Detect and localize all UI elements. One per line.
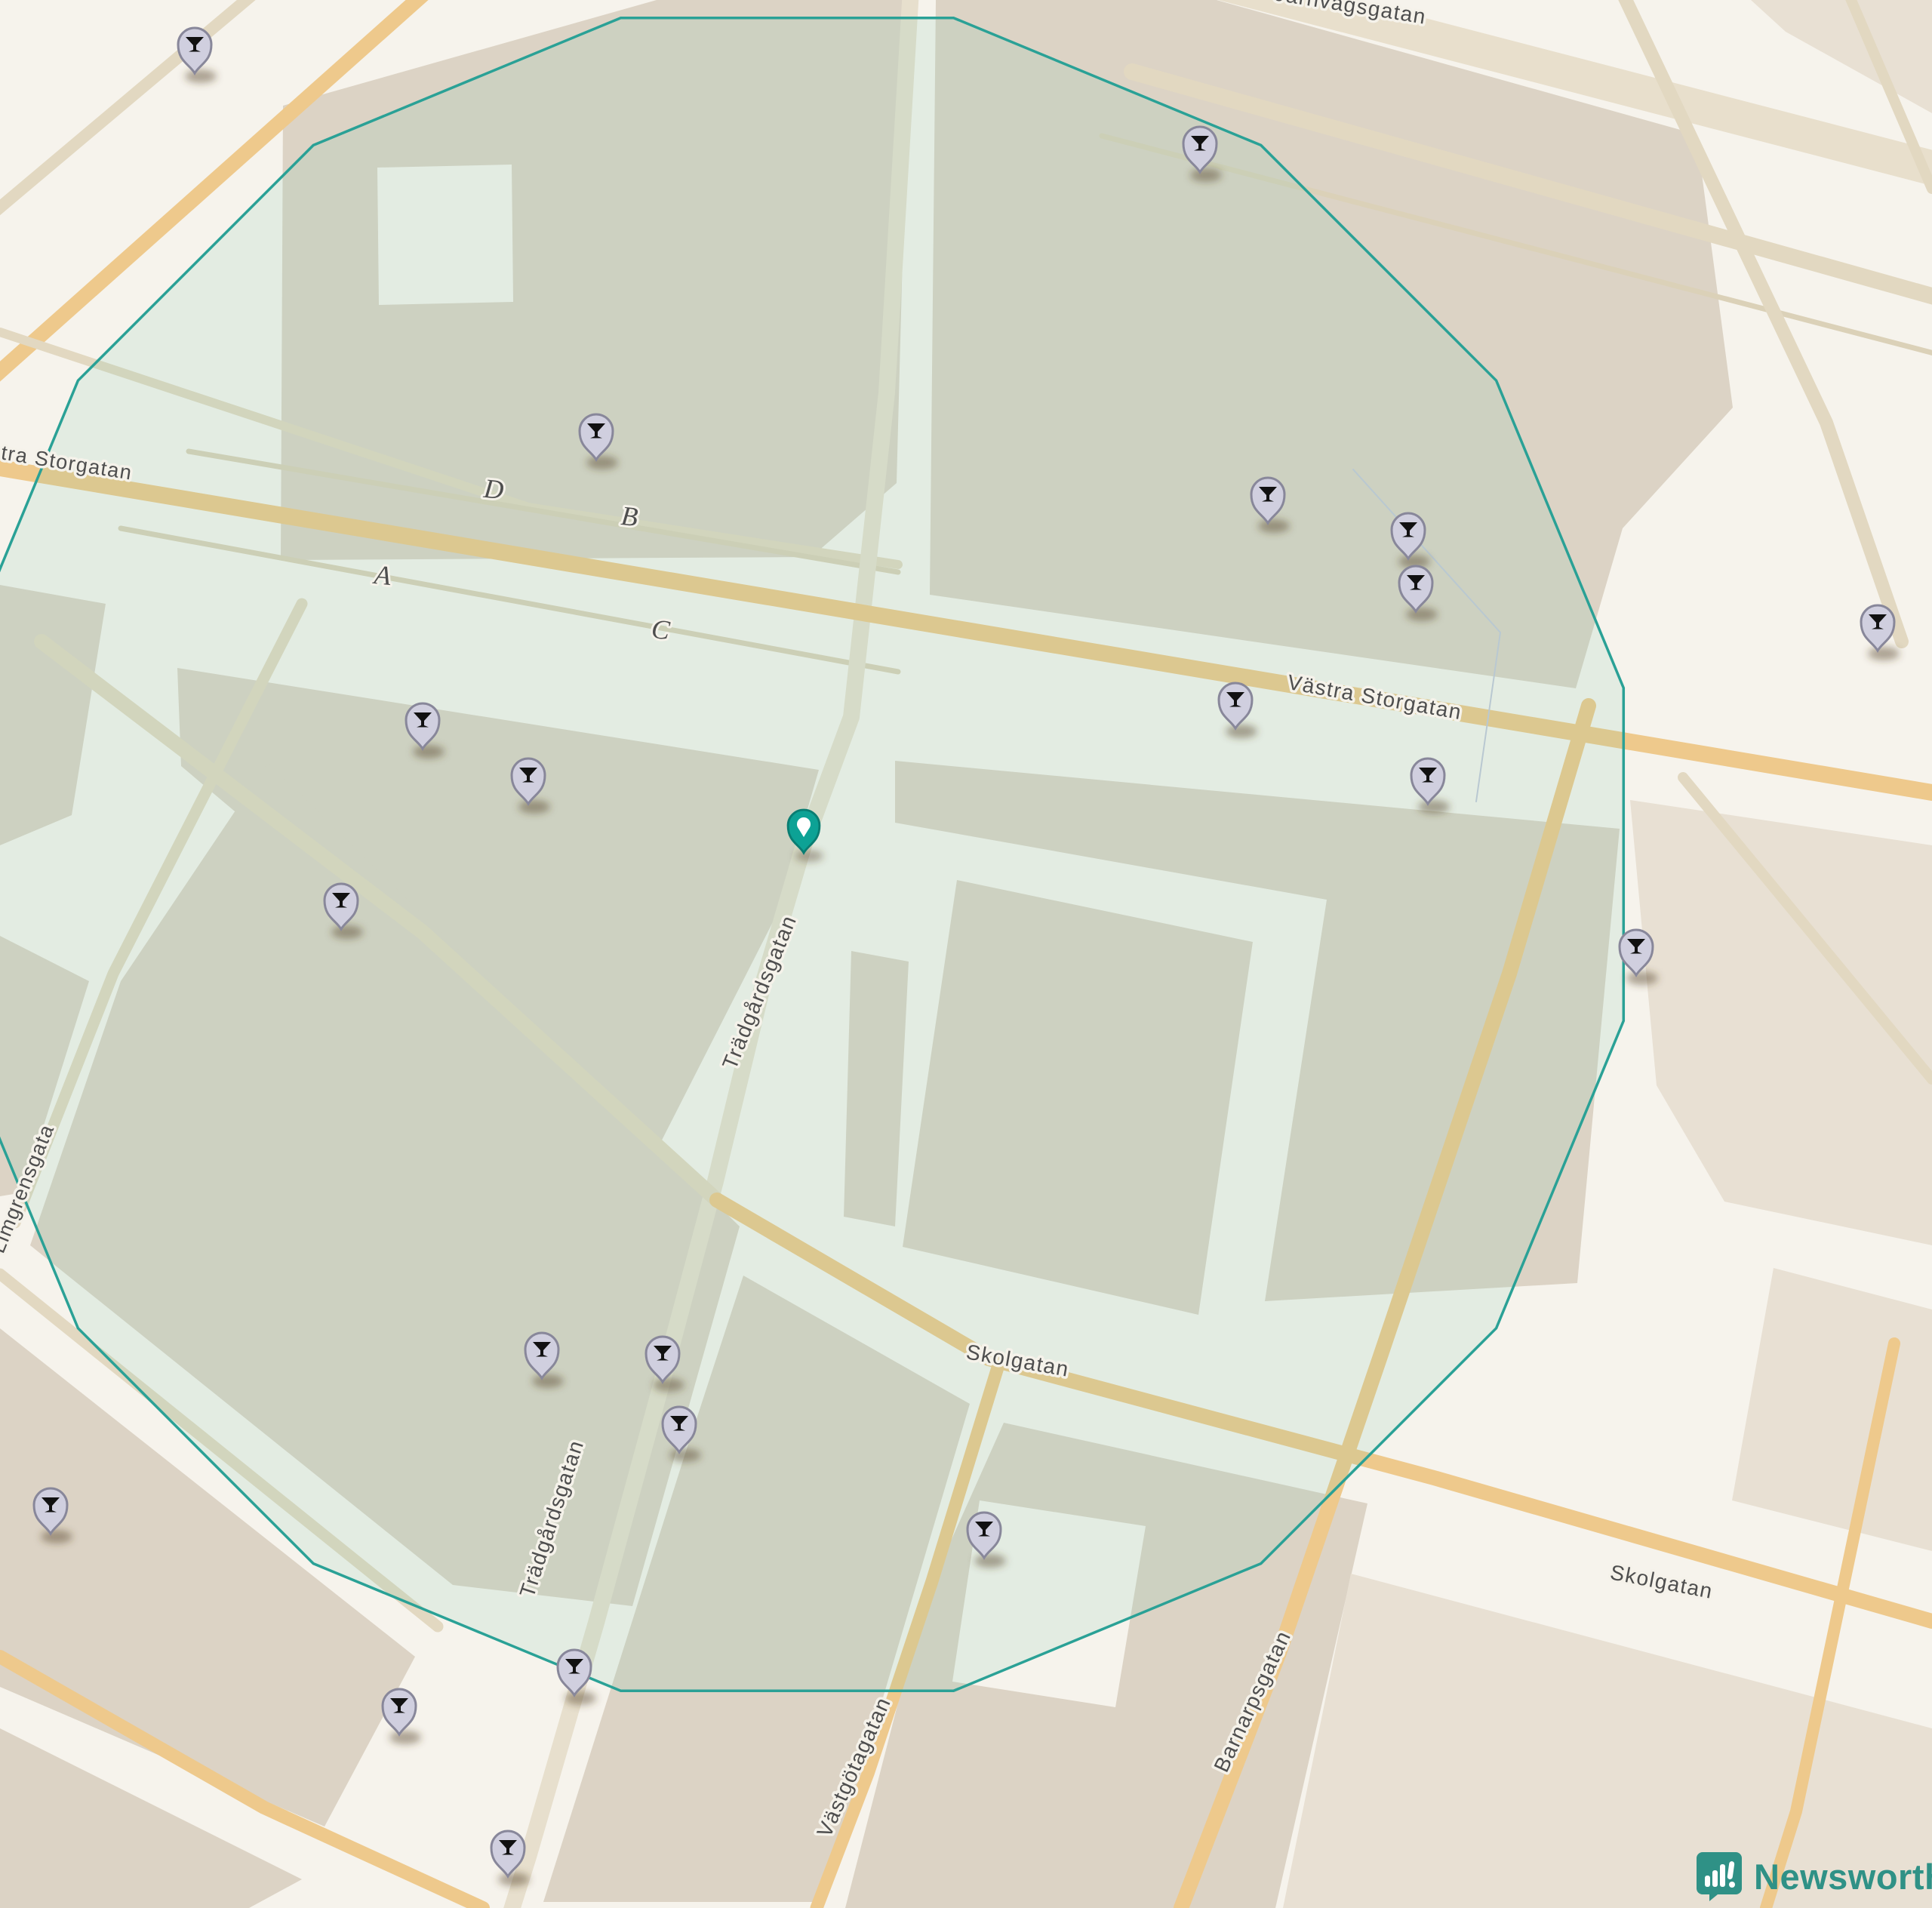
marker-shadow bbox=[653, 1378, 685, 1392]
marker-shadow bbox=[565, 1691, 596, 1705]
newsworthy-logo: Newsworthy bbox=[1695, 1851, 1932, 1902]
newsworthy-logo-text: Newsworthy bbox=[1754, 1856, 1932, 1897]
newsworthy-logo-icon bbox=[1695, 1851, 1743, 1902]
marker-shadow bbox=[1868, 647, 1900, 660]
marker-shadow bbox=[1190, 168, 1222, 182]
marker-shadow bbox=[974, 1554, 1006, 1568]
bus-platform-label: D bbox=[481, 473, 505, 506]
marker-shadow bbox=[1226, 725, 1257, 738]
marker-shadow bbox=[389, 1731, 421, 1744]
bus-platform-label: B bbox=[620, 500, 639, 532]
map-viewport: Västra StorgatanVästra StorgatanJärnvägs… bbox=[0, 0, 1932, 1908]
marker-shadow bbox=[185, 69, 217, 83]
marker-shadow bbox=[331, 925, 363, 939]
marker-shadow bbox=[532, 1374, 564, 1388]
marker-shadow bbox=[498, 1873, 530, 1886]
marker-shadow bbox=[586, 456, 618, 469]
marker-shadow bbox=[1406, 608, 1438, 621]
marker-shadow bbox=[41, 1530, 72, 1543]
marker-shadow bbox=[1258, 519, 1290, 533]
marker-shadow bbox=[795, 850, 823, 862]
marker-shadow bbox=[413, 745, 445, 759]
marker-shadow bbox=[669, 1448, 701, 1462]
map-canvas[interactable]: Västra StorgatanVästra StorgatanJärnvägs… bbox=[0, 0, 1932, 1908]
marker-shadow bbox=[518, 800, 550, 814]
marker-shadow bbox=[1626, 971, 1658, 985]
marker-shadow bbox=[1418, 800, 1450, 814]
